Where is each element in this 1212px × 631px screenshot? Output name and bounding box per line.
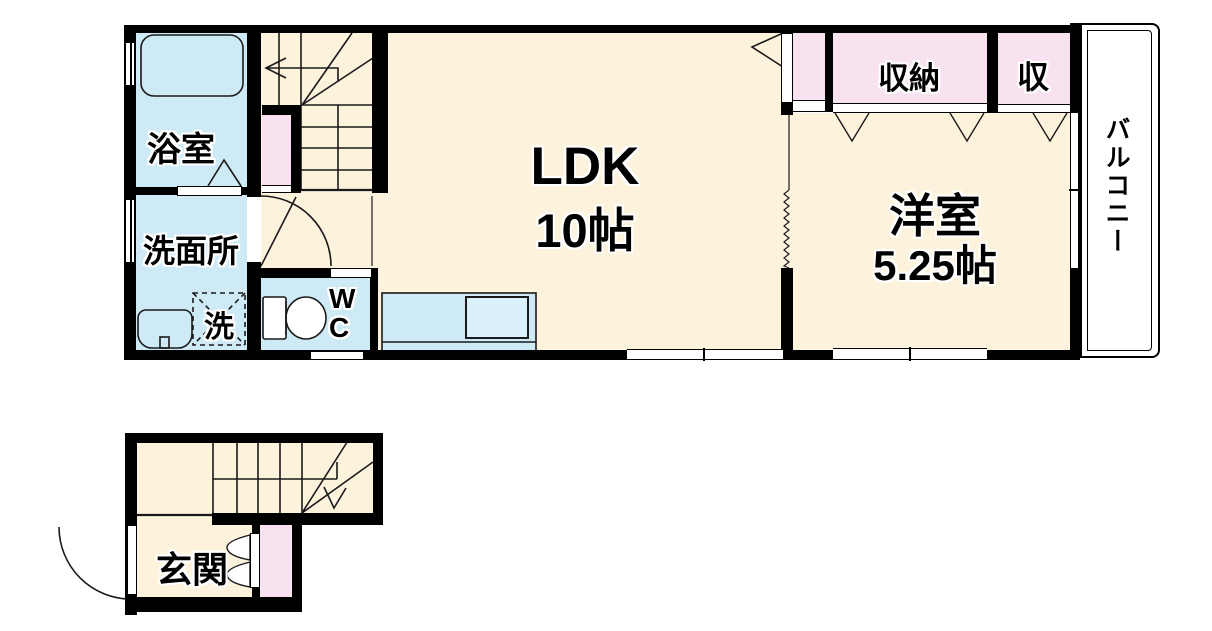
window-washroom-left [125,200,135,262]
label-closet-large: 収納 [878,53,940,98]
door-wc [330,268,372,278]
window-bedroom-bottom [833,348,987,360]
closet-strip [793,33,825,100]
wall-lower-top [125,433,383,443]
wall-top [124,25,1078,33]
understair-closet-door [262,185,291,193]
label-bathroom: 浴室 [147,122,215,171]
window-bathroom-left [125,43,135,85]
wall-bath-right [247,25,261,350]
wall-understair-closet-top [262,105,301,115]
label-washroom: 洗面所 [143,226,239,272]
label-closet-small: 収 [1017,52,1049,98]
label-balcony: バルコニー [1098,116,1134,256]
door-arc-entrance [59,527,131,599]
label-ldk-size: 10帖 [480,192,690,261]
label-entrance: 玄関 [156,541,228,593]
closet-large-door [833,103,987,113]
door-bathroom-slide [177,186,242,196]
window-wc-bottom [311,351,363,360]
shoe-closet [260,525,292,597]
window-ldk-bottom [627,349,783,360]
wall-closet-divider [987,25,998,113]
closet-small-door [998,104,1070,113]
label-wc: WC [329,285,359,342]
wall-entrance-right [292,513,302,612]
door-leaf-entrance [127,525,137,595]
closet-strip-door [793,100,825,112]
wall-lower-bottom [125,597,302,612]
wall-stair-right [372,25,388,193]
wall-wc-top [261,268,330,278]
floor-plan: 浴室 洗面所 洗 WC LDK 10帖 収納 収 洋室 5.25帖 バルコニー … [0,0,1212,631]
wall-lower-right [373,433,383,525]
wall-wc-right [370,268,378,350]
label-washer: 洗 [204,302,234,346]
wall-understair-closet [291,105,301,193]
door-leaf-bedroom [781,33,793,103]
label-bedroom-size: 5.25帖 [830,232,1040,293]
wall-partition-lower [781,268,793,350]
wall-partition-stub [781,103,793,115]
door-leaf-shoe-closet [250,533,260,588]
understair-closet [262,115,291,185]
doorway-washroom [247,197,261,262]
wall-closet-left [825,25,833,112]
label-ldk: LDK [480,136,690,197]
window-bedroom-right [1070,113,1079,268]
